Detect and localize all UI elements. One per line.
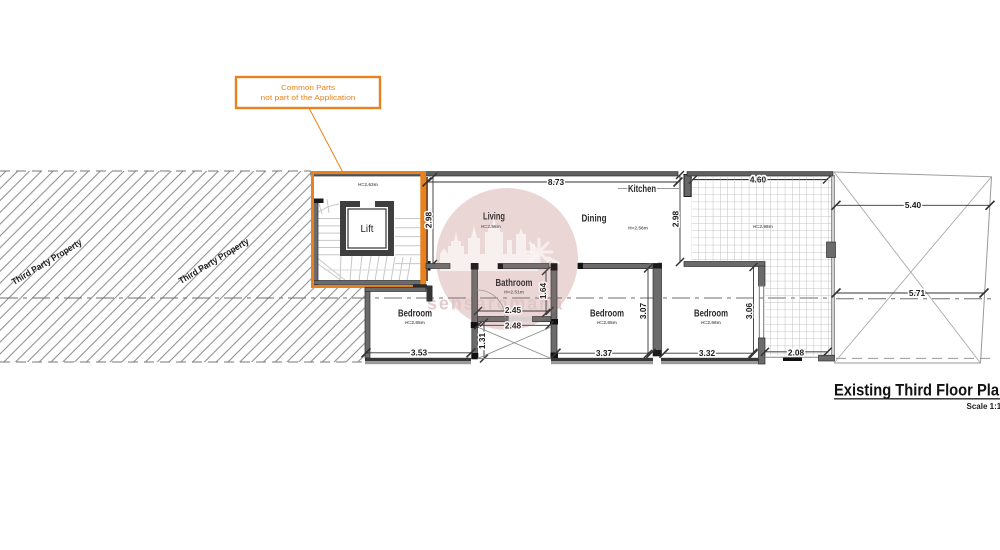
svg-text:2.98: 2.98 [424,212,434,229]
svg-text:H=2.55m: H=2.55m [405,320,425,326]
svg-text:H=2.56m: H=2.56m [628,226,648,232]
svg-text:3.32: 3.32 [699,348,716,358]
svg-text:H=2.63m: H=2.63m [358,182,378,188]
svg-text:H=2.56m: H=2.56m [701,320,721,326]
svg-text:3.06: 3.06 [744,303,754,320]
svg-text:Existing Third Floor Plan: Existing Third Floor Plan [834,381,1000,400]
svg-text:2.08: 2.08 [788,347,805,357]
svg-text:Kitchen: Kitchen [628,184,656,195]
svg-text:Lift: Lift [361,223,374,235]
svg-text:Dining: Dining [582,214,607,225]
svg-text:Bedroom: Bedroom [398,309,432,320]
svg-text:2.98: 2.98 [671,211,681,228]
svg-text:not part of the Application: not part of the Application [261,93,356,102]
svg-text:Bedroom: Bedroom [590,309,624,320]
svg-text:Common Parts: Common Parts [281,83,335,92]
svg-text:3.37: 3.37 [596,348,613,358]
svg-text:5.71: 5.71 [909,288,926,298]
svg-text:1.31: 1.31 [477,333,487,350]
svg-text:H=2.98m: H=2.98m [753,224,773,230]
svg-text:5.40: 5.40 [905,200,922,210]
svg-text:3.53: 3.53 [411,348,428,358]
svg-text:3.07: 3.07 [638,303,648,320]
svg-text:8.73: 8.73 [548,177,565,187]
svg-text:Bedroom: Bedroom [694,309,728,320]
svg-text:H=2.55m: H=2.55m [597,320,617,326]
svg-text:Scale 1:100: Scale 1:100 [967,402,1000,411]
